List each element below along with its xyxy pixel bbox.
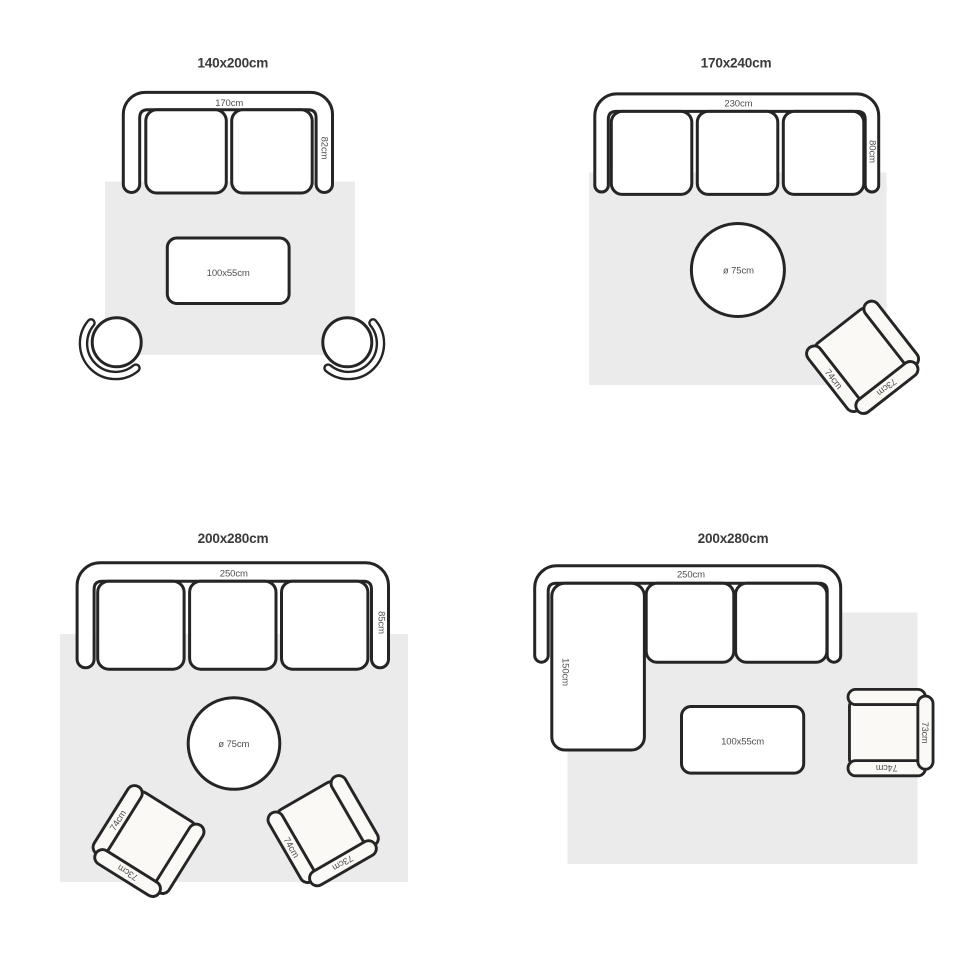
svg-text:74cm: 74cm	[876, 763, 898, 773]
svg-text:200x280cm: 200x280cm	[698, 531, 769, 546]
svg-text:140x200cm: 140x200cm	[197, 56, 268, 71]
svg-text:150cm: 150cm	[560, 658, 571, 686]
svg-text:82cm: 82cm	[319, 137, 330, 160]
svg-text:ø 75cm: ø 75cm	[218, 739, 249, 750]
svg-text:ø 75cm: ø 75cm	[723, 266, 754, 277]
svg-text:80cm: 80cm	[866, 140, 877, 163]
svg-text:170x240cm: 170x240cm	[701, 56, 772, 71]
svg-text:85cm: 85cm	[376, 611, 387, 634]
svg-text:73cm: 73cm	[920, 722, 930, 744]
svg-text:250cm: 250cm	[220, 569, 248, 580]
svg-text:200x280cm: 200x280cm	[198, 531, 269, 546]
svg-text:100x55cm: 100x55cm	[721, 737, 764, 748]
svg-text:250cm: 250cm	[677, 570, 705, 581]
svg-text:100x55cm: 100x55cm	[207, 268, 250, 279]
svg-text:230cm: 230cm	[724, 99, 752, 110]
svg-text:170cm: 170cm	[215, 98, 243, 109]
